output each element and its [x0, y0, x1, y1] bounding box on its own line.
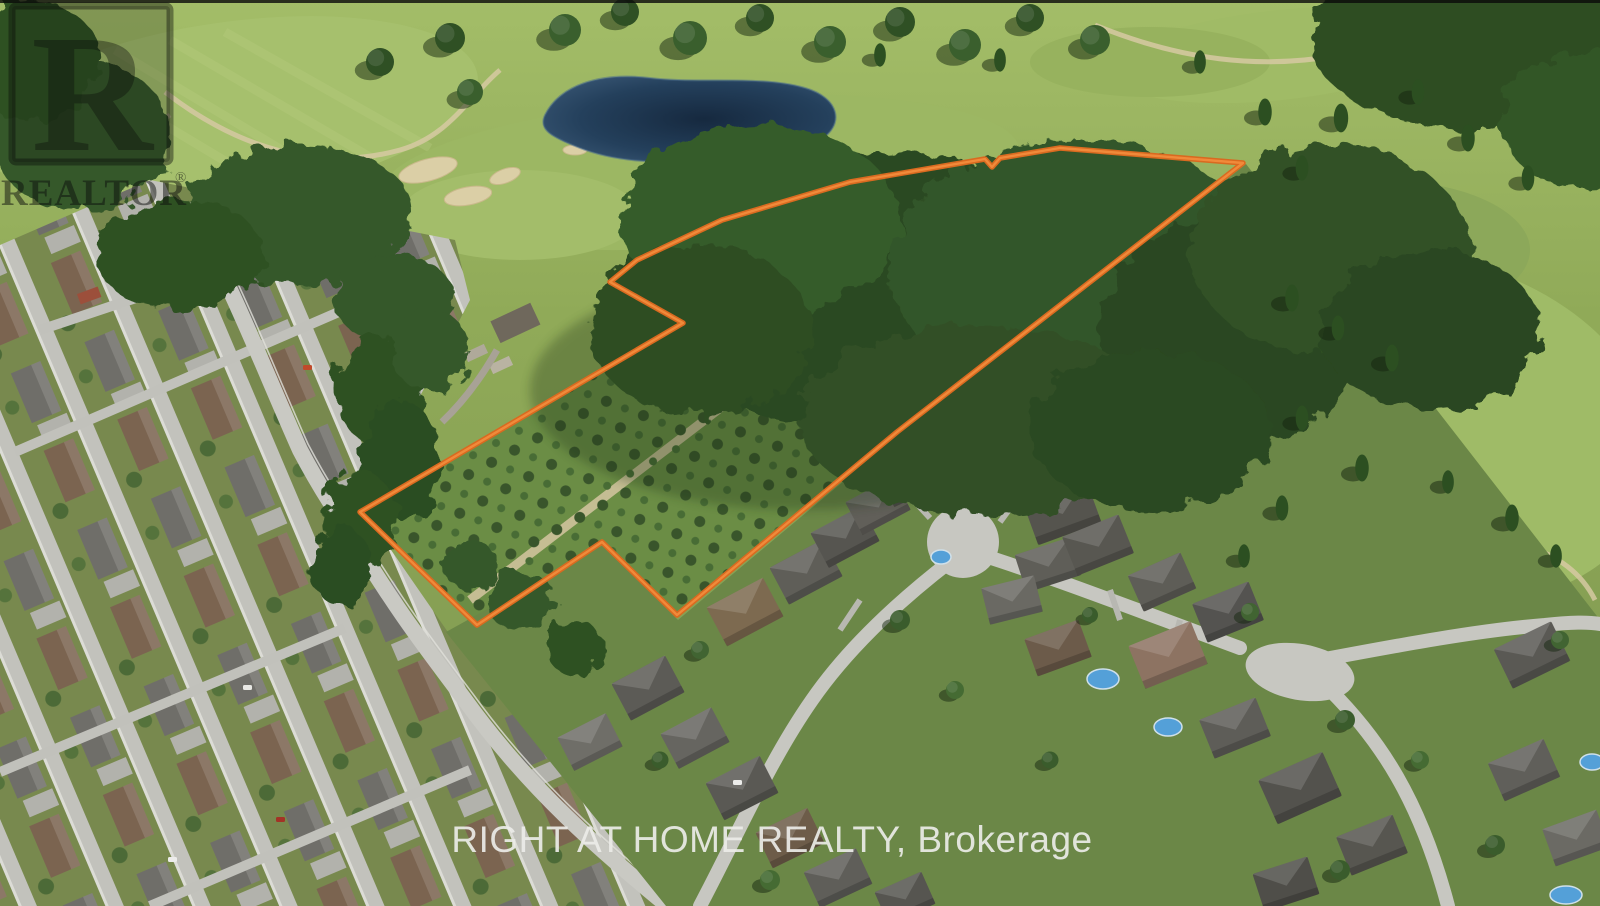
- aerial-photo: R REALTOR ® RIGHT AT HOME REALTY, Broker…: [0, 0, 1600, 906]
- cul-de-sac: [927, 506, 999, 578]
- registered-trademark-icon: ®: [175, 170, 186, 186]
- brokerage-watermark: RIGHT AT HOME REALTY, Brokerage: [451, 819, 1092, 860]
- realtor-logo-letter: R: [31, 1, 154, 187]
- realtor-watermark: R REALTOR ®: [1, 1, 187, 214]
- realtor-logo-label: REALTOR: [1, 173, 187, 214]
- top-border: [0, 0, 1600, 3]
- aerial-photo-canvas: R REALTOR ® RIGHT AT HOME REALTY, Broker…: [0, 0, 1600, 906]
- car: [733, 780, 742, 785]
